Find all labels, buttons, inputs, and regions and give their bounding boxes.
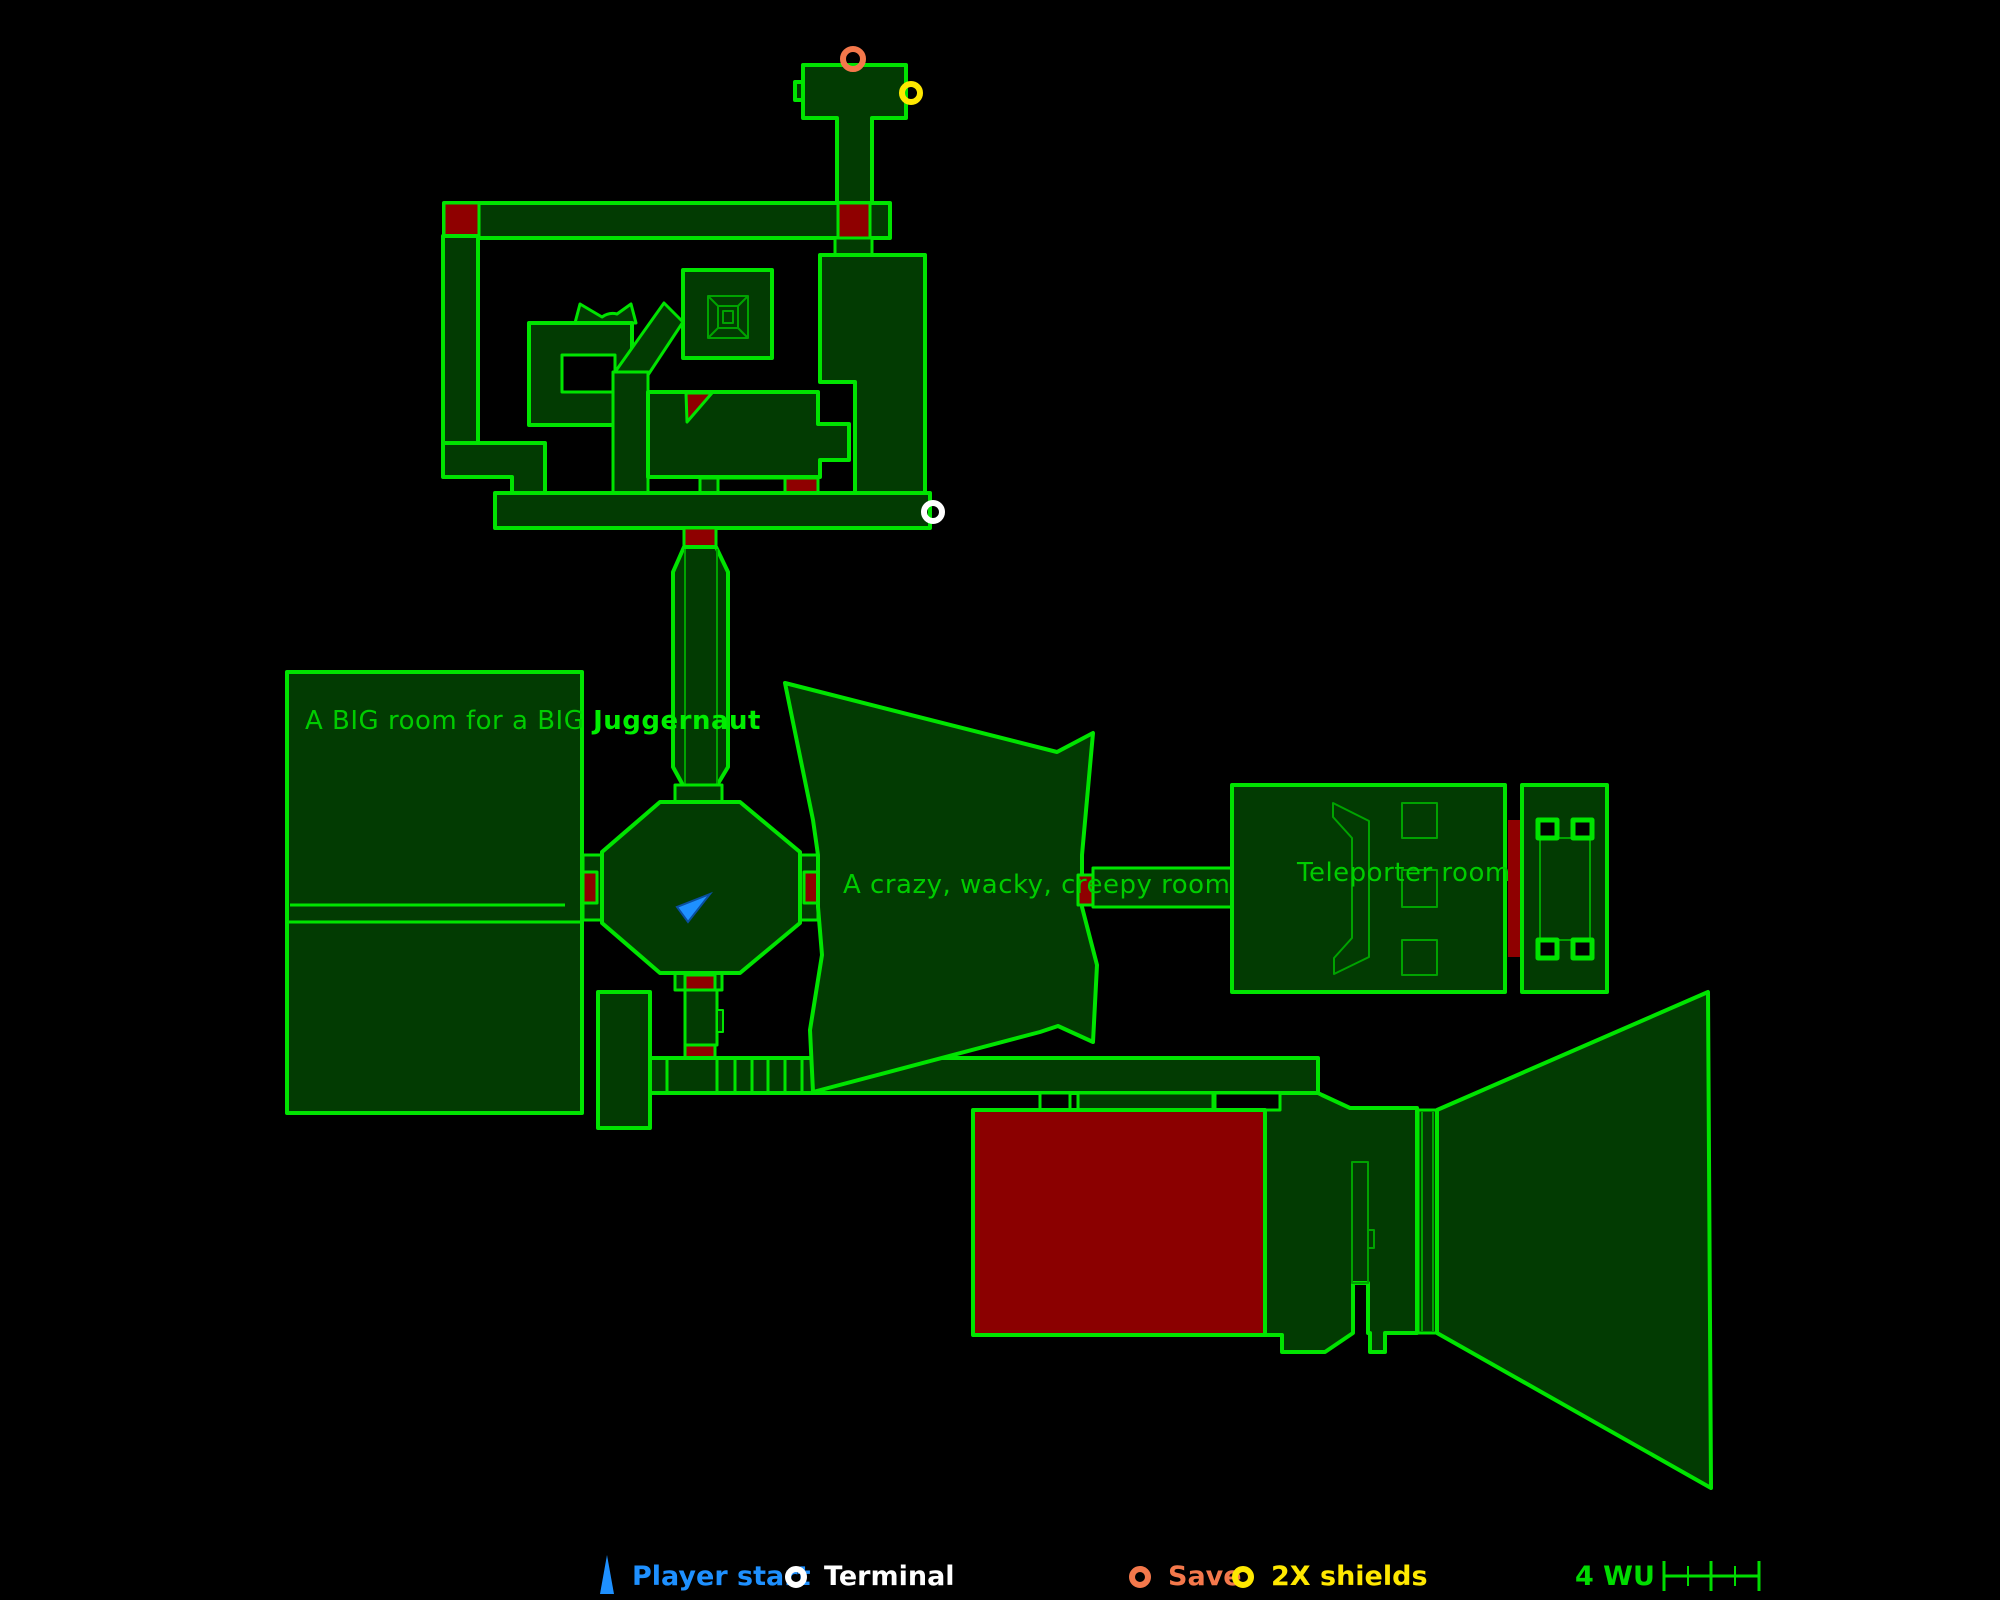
corridor-shaft-lower[interactable] <box>685 990 717 1045</box>
corridor-top[interactable] <box>444 203 890 238</box>
room-big[interactable] <box>287 672 582 1113</box>
map-viewer: A BIG room for a BIG Juggernaut A crazy,… <box>0 0 2000 1600</box>
room-ears-top[interactable] <box>575 304 636 323</box>
big-room-label: A BIG room for a BIG Juggernaut <box>305 706 761 736</box>
door-shaft-top[interactable] <box>684 528 716 547</box>
big-room-label-bold: Juggernaut <box>593 706 761 736</box>
corridor-neck[interactable] <box>1418 1110 1437 1333</box>
room-red[interactable] <box>973 1110 1265 1335</box>
shields-legend-icon <box>1229 1561 1257 1591</box>
annex-socket-2 <box>1573 820 1592 838</box>
door-top-right[interactable] <box>838 203 870 238</box>
room-trapezoid[interactable] <box>1437 992 1711 1488</box>
corridor-left-column[interactable] <box>443 236 478 445</box>
save-icon[interactable] <box>843 49 863 69</box>
annex-socket-3 <box>1538 940 1557 958</box>
player-start-legend-icon <box>596 1554 618 1598</box>
save-legend-icon <box>1126 1561 1154 1591</box>
legend-item-save: Save <box>1126 1556 1242 1596</box>
corridor-bottom-long[interactable] <box>650 1058 1318 1093</box>
room-lower-left-block[interactable] <box>443 443 545 493</box>
room-middle[interactable] <box>648 392 849 477</box>
door-mid[interactable] <box>785 478 818 493</box>
legend-label-2x-shields: 2X shields <box>1271 1561 1428 1592</box>
bar-gap-right <box>1215 1093 1280 1110</box>
legend-scale: 4 WU <box>1575 1556 1765 1596</box>
ears-room-cutout <box>562 355 615 392</box>
room-save[interactable] <box>803 65 906 203</box>
shaft-lower-tab <box>717 1010 723 1032</box>
legend-item-terminal: Terminal <box>782 1556 955 1596</box>
room-nested-square[interactable] <box>683 270 772 358</box>
bar-gap-left <box>1040 1093 1070 1110</box>
door-octagon-right[interactable] <box>804 872 818 903</box>
platform-gap <box>718 478 785 493</box>
octagon-door-stub-top[interactable] <box>675 785 722 802</box>
annex-socket-1 <box>1538 820 1557 838</box>
terminal-legend-icon <box>782 1561 810 1591</box>
room-bottom-right-body[interactable] <box>1265 1093 1417 1352</box>
teleporter-room-label: Teleporter room <box>1297 858 1511 888</box>
door-octagon-bottom[interactable] <box>685 975 715 990</box>
door-top-left[interactable] <box>444 203 479 238</box>
room-small-box[interactable] <box>598 992 650 1128</box>
level-map <box>0 0 2000 1600</box>
legend-item-2x-shields: 2X shields <box>1229 1556 1428 1596</box>
bar-platform[interactable] <box>1078 1093 1213 1110</box>
terminal-icon[interactable] <box>924 503 942 521</box>
platform-sliver[interactable] <box>700 478 718 493</box>
corridor-complex-bottom[interactable] <box>495 493 930 528</box>
scale-label: 4 WU <box>1575 1561 1655 1592</box>
room-teleporter-annex[interactable] <box>1522 785 1607 992</box>
corridor-vertical-long[interactable] <box>673 547 728 787</box>
annex-socket-4 <box>1573 940 1592 958</box>
crazy-room-label: A crazy, wacky, creepy room <box>843 870 1230 900</box>
room-octagon[interactable] <box>602 802 800 973</box>
2x-shields-icon[interactable] <box>902 84 920 102</box>
legend-label-terminal: Terminal <box>824 1561 955 1592</box>
legend-item-player-start: Player start <box>596 1556 810 1596</box>
scale-bar-icon <box>1661 1556 1765 1596</box>
corridor-shaft-upper[interactable] <box>613 372 648 493</box>
door-octagon-left[interactable] <box>583 872 597 903</box>
door-teleporter-strip[interactable] <box>1508 820 1521 957</box>
big-room-label-regular: A BIG room for a BIG <box>305 706 593 736</box>
